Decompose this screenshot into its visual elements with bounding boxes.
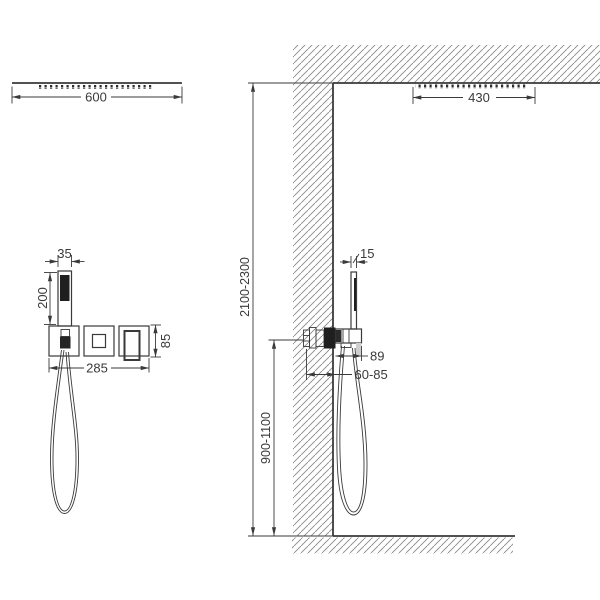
- dim-overhead-width: 600: [12, 87, 182, 105]
- dim-label-holder-offset: 89: [370, 349, 384, 364]
- dim-ceiling-height: 2100-2300: [238, 84, 253, 536]
- nozzle-dots-side: [415, 85, 528, 89]
- diverter-button: [93, 335, 106, 348]
- dim-label-overhead-width: 600: [85, 90, 107, 105]
- valve-trim-edge: [324, 328, 336, 349]
- installation-diagram: 600 35 200: [0, 0, 600, 600]
- dim-label-hand-shower-length: 200: [35, 287, 50, 309]
- side-view: 430 2100-2300 900-1100: [238, 45, 600, 554]
- hand-shower-side: [351, 272, 357, 329]
- dim-hand-shower-depth: 15: [340, 246, 374, 268]
- dim-label-trim-width: 285: [86, 361, 108, 376]
- floor-section: [248, 536, 515, 554]
- overhead-shower-side: [415, 85, 528, 89]
- shower-hose-front: [51, 350, 79, 514]
- wall-hatch: [293, 45, 600, 536]
- dim-label-installation-depth: 60-85: [355, 367, 388, 382]
- front-view: 600 35 200: [12, 83, 182, 514]
- dim-label-hand-shower-width: 35: [57, 246, 71, 261]
- diagram-canvas: 600 35 200: [0, 0, 600, 600]
- wall-ceiling-section: [248, 45, 600, 536]
- dim-label-trim-height: 85: [158, 334, 173, 348]
- hand-shower-holder-front: [60, 337, 71, 349]
- dim-overhead-depth: 430: [413, 87, 535, 105]
- hand-shower-spray-face: [60, 275, 70, 301]
- dim-label-ceiling-height: 2100-2300: [238, 257, 252, 317]
- overhead-shower-front: [12, 83, 182, 89]
- trim-plate-diverter: [84, 326, 114, 356]
- hand-shower-front: [58, 271, 72, 349]
- dim-label-mixer-height: 900-1100: [259, 412, 273, 464]
- dim-trim-height: 85: [151, 325, 174, 357]
- dim-label-overhead-depth: 430: [468, 90, 490, 105]
- floor-hatch: [292, 538, 513, 554]
- dim-label-hand-shower-depth: 15: [360, 246, 374, 261]
- dim-hand-shower-length: 200: [35, 273, 57, 325]
- nozzle-dots-front: [38, 85, 154, 89]
- dim-hand-shower-width: 35: [45, 246, 85, 267]
